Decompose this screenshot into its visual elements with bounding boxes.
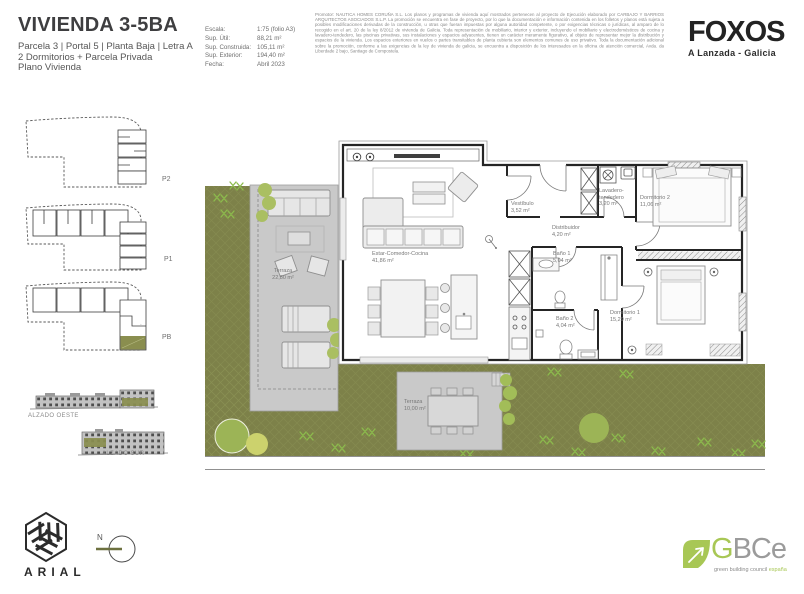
key-plan-label-p1: P1 bbox=[164, 256, 173, 263]
elevation-west bbox=[30, 390, 158, 409]
tv-unit bbox=[394, 154, 440, 158]
spec-row: Sup. Exterior:194,40 m² bbox=[205, 52, 327, 61]
key-plan-label-p2: P2 bbox=[162, 176, 171, 183]
arial-logo-icon bbox=[26, 513, 66, 561]
room-label-bano2: Baño 24,04 m² bbox=[556, 316, 592, 329]
subtitle-line: Parcela 3 | Portal 5 | Planta Baja | Let… bbox=[18, 42, 193, 53]
gbce-leaf-icon bbox=[683, 540, 710, 568]
laundry-sink-icon bbox=[621, 167, 635, 179]
spec-table: Escala:1:75 (folio A3) Sup. Útil:88,21 m… bbox=[205, 26, 327, 70]
north-label: N bbox=[97, 533, 103, 542]
brand-logo: FOXOS bbox=[688, 16, 785, 49]
spec-row: Fecha:Abril 2023 bbox=[205, 61, 327, 70]
gbce-logo-text: GBCe bbox=[711, 533, 786, 566]
key-plan-p2 bbox=[26, 117, 146, 187]
drawing-canvas bbox=[0, 0, 804, 594]
elevation-west-label: ALZADO OESTE bbox=[28, 413, 79, 419]
kitchen-island bbox=[441, 275, 478, 339]
legal-disclaimer: Promotor: NAUTICA HOMES CORUÑA S.L. Los … bbox=[315, 13, 664, 54]
outdoor-table bbox=[288, 232, 310, 245]
room-label-estar: Estar-Comedor-Cocina41,86 m² bbox=[372, 251, 452, 264]
spec-row: Escala:1:75 (folio A3) bbox=[205, 26, 327, 35]
outdoor-sofa bbox=[268, 190, 330, 216]
room-label-distribuidor: Distribuidor4,20 m² bbox=[552, 225, 596, 238]
room-label-terraza-oeste: Terraza22,80 m² bbox=[258, 268, 308, 281]
spec-row: Sup. Útil:88,21 m² bbox=[205, 35, 327, 44]
room-label-bano1: Baño 15,04 m² bbox=[553, 251, 589, 264]
subtitle-line: Plano Vivienda bbox=[18, 63, 193, 74]
key-plan-p1 bbox=[26, 204, 146, 270]
room-label-terraza-sur: Terraza10,00 m² bbox=[404, 399, 440, 412]
page-subtitle: Parcela 3 | Portal 5 | Planta Baja | Let… bbox=[18, 42, 193, 74]
room-label-dormitorio1: Dormitorio 115,29 m² bbox=[610, 310, 654, 323]
garden-path bbox=[205, 457, 765, 470]
room-label-dormitorio2: Dormitorio 211,06 m² bbox=[640, 195, 684, 208]
key-plan-label-pb: PB bbox=[162, 334, 171, 341]
sun-lounger bbox=[282, 306, 330, 332]
plan-sheet: VIVIENDA 3-5BA Parcela 3 | Portal 5 | Pl… bbox=[0, 0, 804, 594]
room-label-vestibulo: Vestíbulo3,52 m² bbox=[511, 201, 553, 214]
brand-location: A Lanzada - Galicia bbox=[688, 48, 776, 58]
studio-logo-text: ARIAL bbox=[24, 565, 86, 579]
sun-lounger bbox=[282, 342, 330, 368]
dining-set bbox=[368, 280, 438, 337]
wardrobe-band bbox=[638, 252, 740, 260]
key-plan-pb bbox=[26, 282, 146, 350]
washer-icon bbox=[600, 167, 616, 183]
room-label-lavadero: Lavadero-tendedero3,20 m² bbox=[599, 188, 633, 208]
spec-row: Sup. Construida:105,11 m² bbox=[205, 44, 327, 53]
elevation-south-label: ALZADO SUR bbox=[102, 451, 144, 457]
page-title: VIVIENDA 3-5BA bbox=[18, 14, 178, 37]
gbce-tagline: green building council españa bbox=[714, 567, 787, 573]
